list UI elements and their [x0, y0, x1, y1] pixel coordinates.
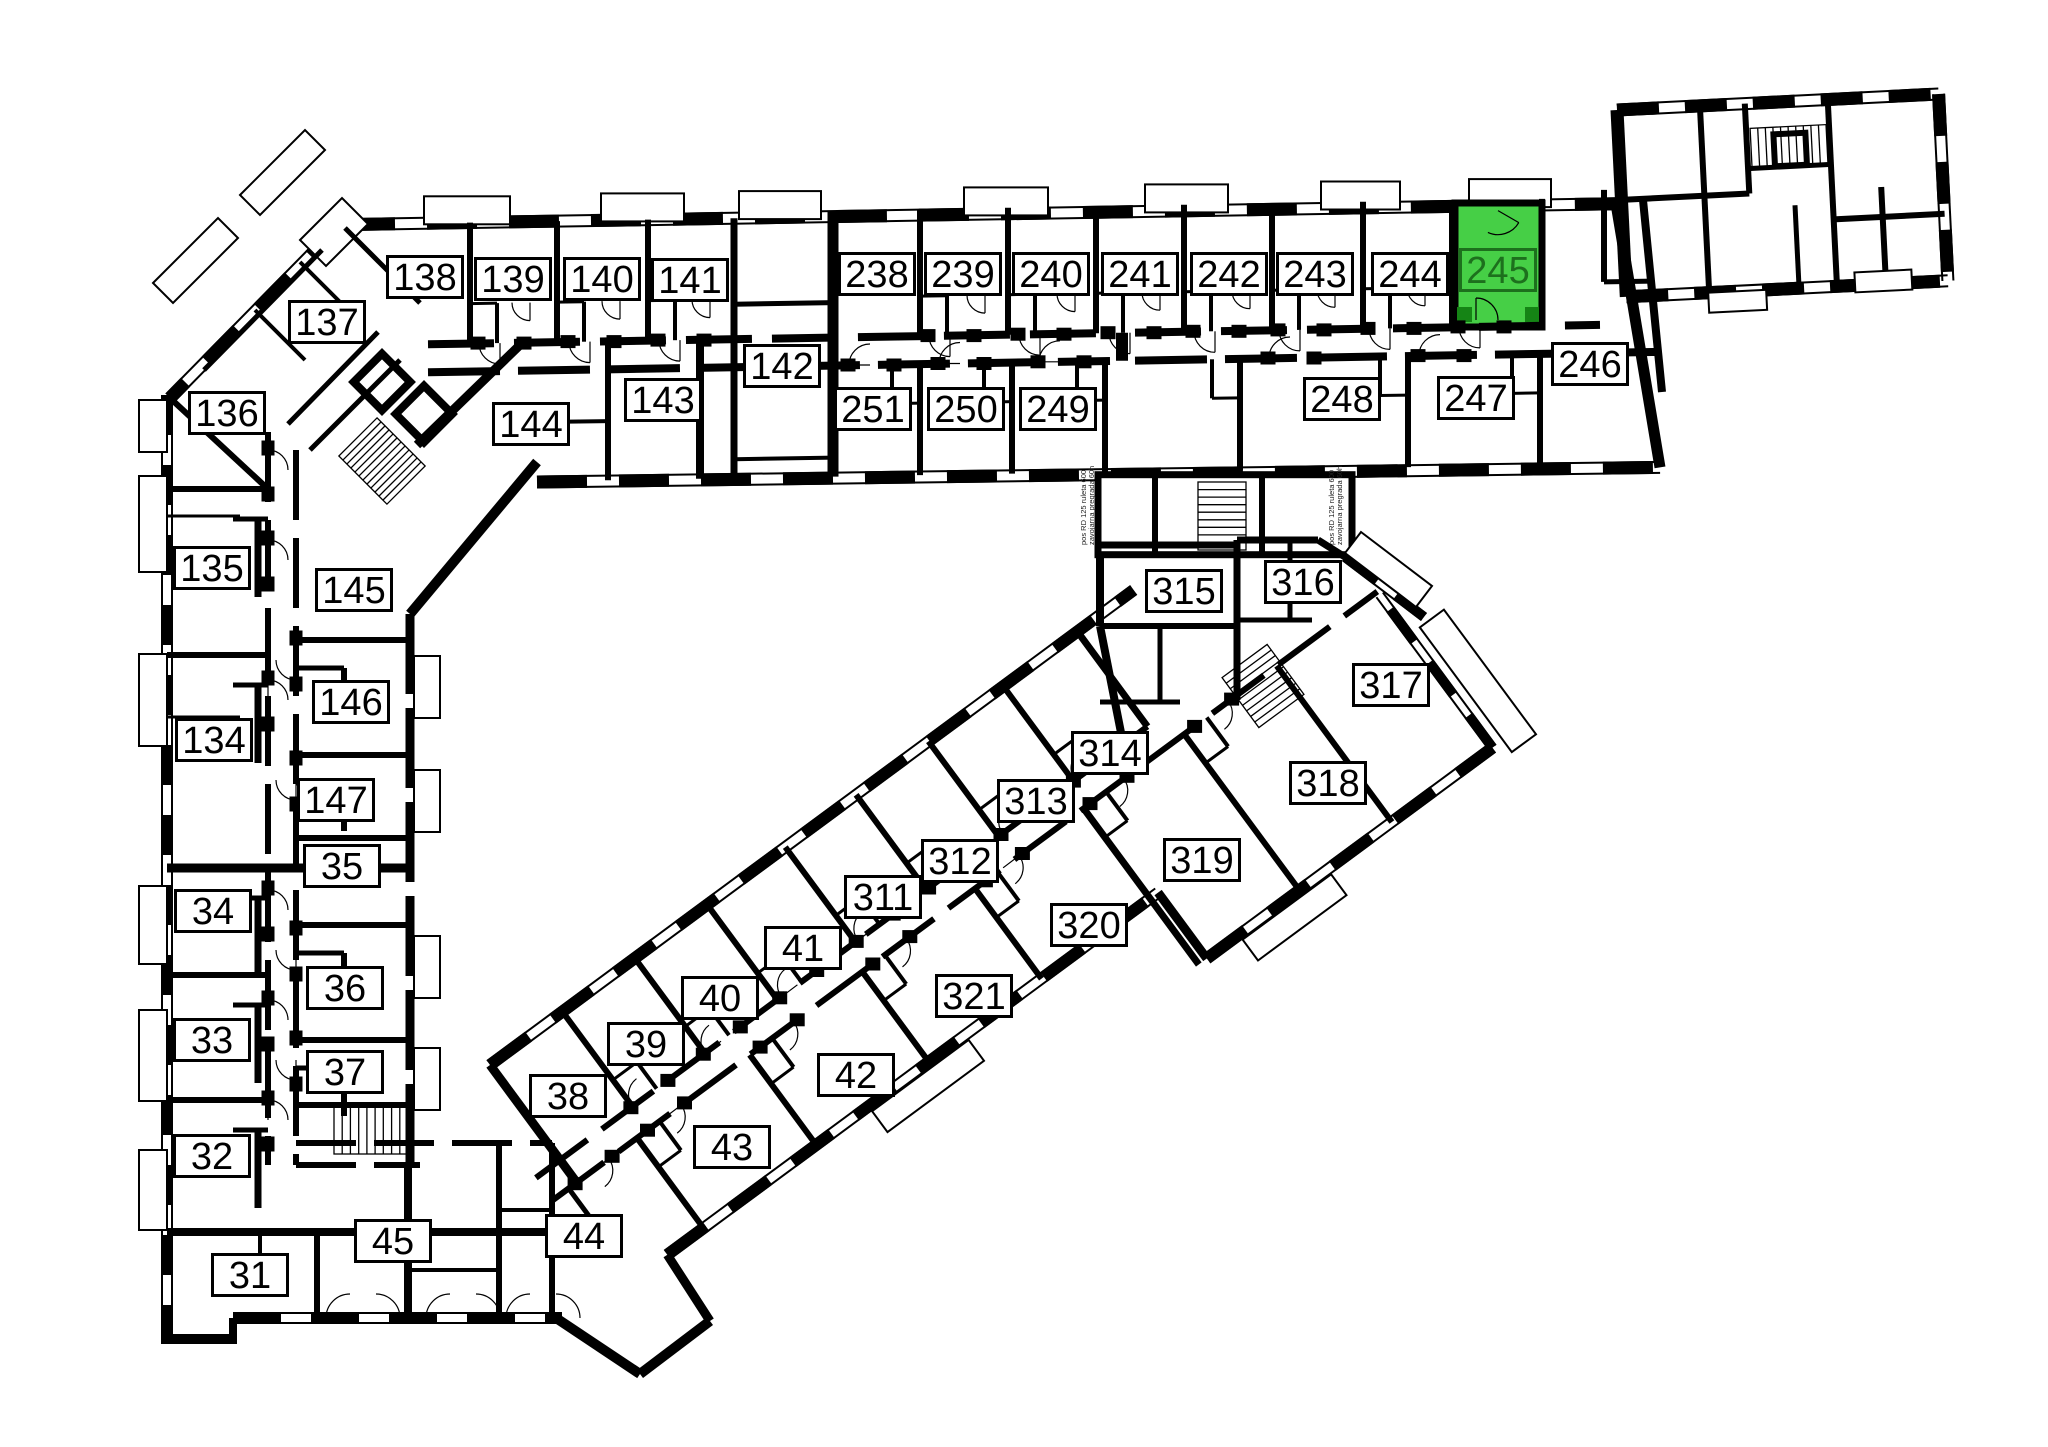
svg-text:139: 139 [481, 259, 544, 301]
svg-text:321: 321 [942, 976, 1005, 1018]
svg-text:40: 40 [699, 978, 741, 1020]
svg-text:317: 317 [1359, 665, 1422, 707]
svg-text:140: 140 [570, 259, 633, 301]
svg-text:246: 246 [1558, 344, 1621, 386]
svg-text:44: 44 [563, 1216, 605, 1258]
svg-text:315: 315 [1152, 571, 1215, 613]
svg-text:134: 134 [182, 720, 245, 762]
svg-text:33: 33 [191, 1020, 233, 1062]
svg-text:31: 31 [229, 1255, 271, 1297]
svg-text:45: 45 [372, 1221, 414, 1263]
svg-text:137: 137 [295, 302, 358, 344]
svg-text:37: 37 [324, 1052, 366, 1094]
svg-text:320: 320 [1057, 905, 1120, 947]
svg-text:32: 32 [191, 1136, 233, 1178]
svg-text:244: 244 [1378, 254, 1441, 296]
svg-text:135: 135 [180, 548, 243, 590]
svg-text:245: 245 [1466, 250, 1529, 292]
svg-text:34: 34 [192, 891, 234, 933]
svg-text:146: 146 [319, 682, 382, 724]
svg-text:138: 138 [393, 257, 456, 299]
svg-text:314: 314 [1078, 733, 1141, 775]
svg-text:240: 240 [1019, 254, 1082, 296]
svg-text:316: 316 [1271, 562, 1334, 604]
svg-text:311: 311 [853, 877, 914, 919]
svg-text:312: 312 [928, 841, 991, 883]
svg-text:147: 147 [304, 780, 367, 822]
svg-text:136: 136 [195, 393, 258, 435]
svg-text:38: 38 [547, 1076, 589, 1118]
svg-text:238: 238 [845, 254, 908, 296]
svg-text:249: 249 [1026, 389, 1089, 431]
svg-text:143: 143 [631, 380, 694, 422]
svg-text:144: 144 [499, 404, 562, 446]
svg-text:251: 251 [841, 389, 904, 431]
svg-text:43: 43 [711, 1127, 753, 1169]
svg-text:243: 243 [1283, 254, 1346, 296]
svg-text:36: 36 [324, 968, 366, 1010]
svg-text:41: 41 [782, 928, 824, 970]
svg-text:241: 241 [1108, 254, 1171, 296]
svg-text:250: 250 [934, 389, 997, 431]
svg-text:313: 313 [1004, 781, 1067, 823]
svg-text:239: 239 [931, 254, 994, 296]
svg-text:319: 319 [1170, 840, 1233, 882]
svg-text:247: 247 [1444, 378, 1507, 420]
svg-text:242: 242 [1197, 254, 1260, 296]
svg-text:145: 145 [322, 570, 385, 612]
svg-text:35: 35 [321, 846, 363, 888]
svg-text:42: 42 [835, 1055, 877, 1097]
svg-text:141: 141 [658, 260, 721, 302]
svg-text:248: 248 [1310, 379, 1373, 421]
svg-text:142: 142 [750, 346, 813, 388]
svg-text:zavojarna pregrada 60h: zavojarna pregrada 60h [1335, 466, 1344, 545]
svg-text:39: 39 [625, 1024, 667, 1066]
svg-text:318: 318 [1296, 763, 1359, 805]
svg-text:zavojarna pregrada 60h: zavojarna pregrada 60h [1087, 466, 1096, 545]
